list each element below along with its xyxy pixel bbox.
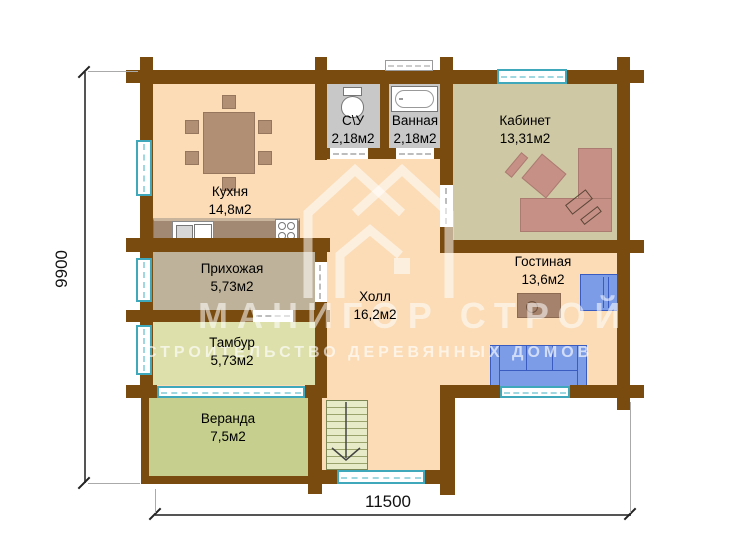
- dimension-height-label: 9900: [52, 250, 72, 288]
- log-end: [126, 238, 140, 252]
- log-end: [308, 484, 322, 494]
- toilet-icon: [343, 87, 362, 96]
- room-label-veranda: Веранда7,5м2: [168, 410, 288, 445]
- bathtub-icon: [391, 86, 438, 112]
- dimension-line-horizontal: [155, 514, 631, 516]
- wall: [308, 398, 322, 484]
- log-end: [630, 240, 644, 253]
- wall: [617, 70, 630, 400]
- window: [497, 69, 567, 84]
- extension-line: [88, 483, 140, 484]
- log-end: [617, 57, 630, 70]
- extension-line: [88, 71, 138, 72]
- floor-plan: МАНИГОР СТРОЙ СТРОИТЕЛЬСТВО ДЕРЕВЯННЫХ Д…: [0, 0, 731, 548]
- dimension-line-vertical: [84, 72, 86, 483]
- log-end: [617, 398, 630, 410]
- wall: [322, 470, 337, 484]
- room-label-living-room: Гостиная13,6м2: [483, 253, 603, 288]
- room-label-bathroom: Ванная2,18м2: [384, 112, 446, 147]
- room-label-wc: С\У2,18м2: [322, 112, 384, 147]
- wall: [440, 240, 630, 253]
- wall: [455, 385, 500, 398]
- wall: [141, 398, 149, 476]
- room-label-hall: Холл16,2м2: [315, 288, 435, 323]
- stool: [222, 95, 236, 109]
- wall: [440, 385, 455, 484]
- room-label-office: Кабинет13,31м2: [465, 112, 585, 147]
- log-end: [126, 385, 140, 398]
- log-end: [140, 57, 153, 70]
- room-label-kitchen: Кухня14,8м2: [170, 183, 290, 218]
- dimension-width-label: 11500: [365, 492, 411, 512]
- log-end: [630, 385, 644, 398]
- log-end: [126, 310, 140, 322]
- wall: [141, 476, 308, 484]
- log-end: [315, 57, 327, 70]
- stool: [185, 120, 199, 134]
- window: [337, 470, 425, 484]
- window: [385, 60, 433, 71]
- wall: [305, 385, 327, 398]
- extension-line: [630, 402, 631, 513]
- wall: [425, 470, 440, 484]
- wall: [570, 385, 617, 398]
- log-end: [440, 57, 453, 70]
- stool: [258, 151, 272, 165]
- window: [500, 386, 570, 398]
- room-label-tambour: Тамбур5,73м2: [172, 334, 292, 369]
- dining-table: [203, 112, 255, 174]
- window: [136, 140, 152, 196]
- wall: [140, 385, 157, 398]
- stool: [185, 151, 199, 165]
- stool: [258, 120, 272, 134]
- log-end: [630, 70, 644, 83]
- watermark-logo: [298, 158, 463, 303]
- window: [157, 386, 305, 398]
- room-label-hallway: Прихожая5,73м2: [172, 260, 292, 295]
- window: [136, 258, 152, 302]
- stair-arrow: [326, 398, 366, 470]
- log-end: [440, 484, 455, 495]
- extension-line: [155, 489, 156, 513]
